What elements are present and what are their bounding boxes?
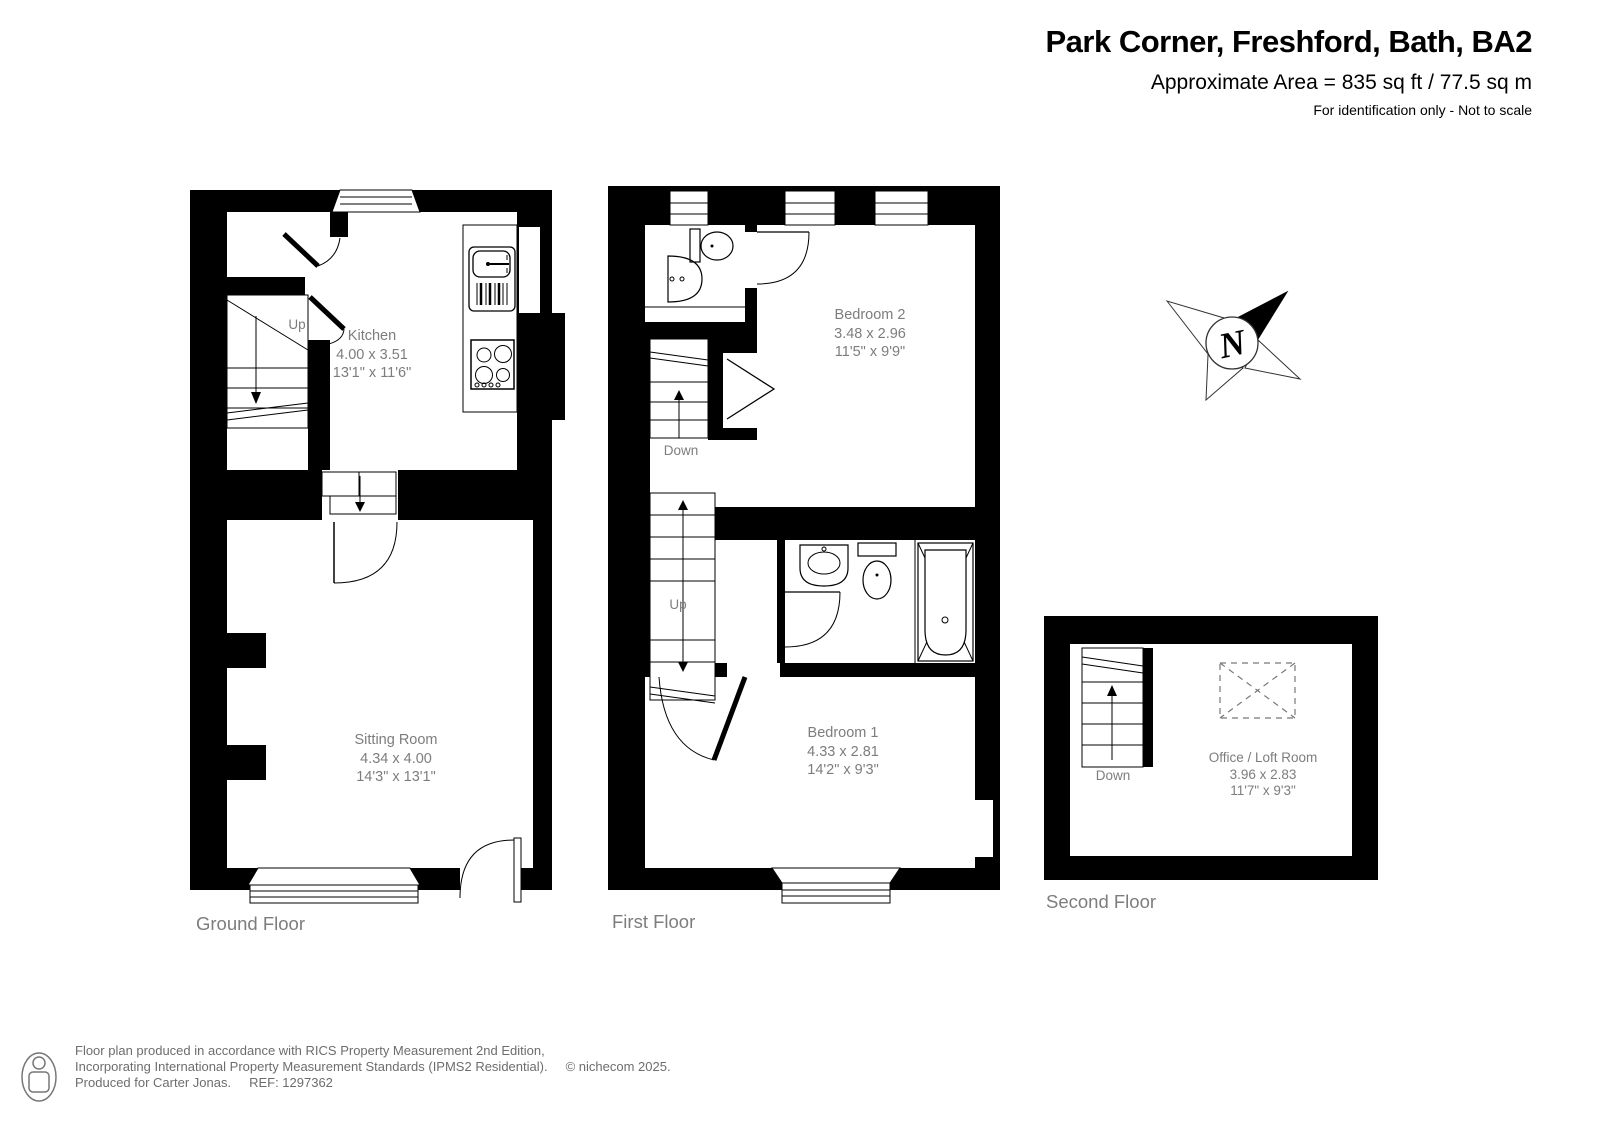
room-name: Kitchen: [333, 327, 411, 346]
room-size-imperial: 11'5" x 9'9": [834, 343, 906, 362]
person-icon: [22, 1053, 56, 1101]
room-size-imperial: 13'1" x 11'6": [333, 364, 411, 383]
interior-wall: [715, 507, 975, 540]
sitting-room-floor: [227, 520, 533, 868]
interior-wall: [330, 212, 348, 237]
ground-floor-plan: [190, 190, 565, 903]
window: [785, 191, 835, 225]
room-size-metric: 3.48 x 2.96: [834, 325, 906, 344]
interior-wall: [715, 339, 757, 353]
office-label: Office / Loft Room 3.96 x 2.83 11'7" x 9…: [1209, 750, 1318, 800]
first-floor-plan: [608, 186, 1000, 903]
interior-wall: [1143, 648, 1153, 767]
bay-window: [248, 868, 420, 903]
room-name: Bedroom 1: [807, 724, 879, 743]
interior-wall: [777, 645, 785, 663]
chimney-pillar: [227, 745, 266, 780]
stair-label-down-first: Down: [664, 443, 699, 458]
reference-number: REF: 1297362: [249, 1075, 333, 1090]
interior-wall: [715, 428, 757, 440]
header: Park Corner, Freshford, Bath, BA2 Approx…: [1045, 24, 1532, 118]
kitchen-window: [332, 190, 420, 212]
room-size-metric: 4.33 x 2.81: [807, 743, 879, 762]
room-size-imperial: 14'3" x 13'1": [354, 768, 437, 787]
hallway: [715, 540, 777, 665]
footer-line1: Floor plan produced in accordance with R…: [75, 1043, 671, 1059]
disclaimer: For identification only - Not to scale: [1045, 102, 1532, 118]
kitchen-label: Kitchen 4.00 x 3.51 13'1" x 11'6": [333, 327, 411, 383]
room-size-imperial: 14'2" x 9'3": [807, 761, 879, 780]
stair-label-up-first: Up: [669, 597, 686, 612]
wall-recess: [519, 227, 540, 313]
interior-wall: [780, 663, 975, 677]
produced-for-text: Produced for Carter Jonas.: [75, 1075, 231, 1090]
footer-line2: Incorporating International Property Mea…: [75, 1059, 671, 1075]
chimney-pillar: [227, 633, 266, 668]
room-name: Office / Loft Room: [1209, 750, 1318, 767]
page-title: Park Corner, Freshford, Bath, BA2: [1045, 24, 1532, 60]
bedroom1-label: Bedroom 1 4.33 x 2.81 14'2" x 9'3": [807, 724, 879, 780]
sitting-room-label: Sitting Room 4.34 x 4.00 14'3" x 13'1": [354, 731, 437, 787]
wall-recess: [975, 800, 993, 857]
stair-label-down-second: Down: [1096, 768, 1131, 783]
room-size-metric: 3.96 x 2.83: [1209, 767, 1318, 784]
bedroom2-floor: [757, 225, 975, 507]
footer-line3: Produced for Carter Jonas.REF: 1297362: [75, 1075, 671, 1091]
footer-standards-text: Incorporating International Property Mea…: [75, 1059, 548, 1074]
interior-wall: [308, 340, 330, 470]
stair-label-up-ground: Up: [288, 317, 305, 332]
window: [670, 191, 708, 225]
room-name: Sitting Room: [354, 731, 437, 750]
interior-wall: [227, 277, 305, 295]
window: [875, 191, 928, 225]
footer: Floor plan produced in accordance with R…: [75, 1043, 671, 1090]
doorway-gap: [723, 353, 757, 428]
first-floor-label: First Floor: [612, 911, 695, 933]
room-size-imperial: 11'7" x 9'3": [1209, 783, 1318, 800]
interior-wall: [715, 663, 727, 677]
second-floor-label: Second Floor: [1046, 891, 1156, 913]
floorplan-canvas: N: [0, 0, 1600, 1132]
room-size-metric: 4.00 x 3.51: [333, 346, 411, 365]
room-name: Bedroom 2: [834, 306, 906, 325]
interior-wall: [708, 339, 715, 440]
approximate-area: Approximate Area = 835 sq ft / 77.5 sq m: [1045, 71, 1532, 95]
interior-wall: [777, 540, 785, 592]
interior-wall: [645, 322, 757, 339]
compass-rose: N: [1167, 292, 1300, 400]
doorway-gap: [745, 232, 757, 288]
bathtub-icon: [918, 543, 973, 661]
floorplan-page: N Park Corner, Freshford, Bath, BA2 Appr…: [0, 0, 1600, 1132]
bedroom2-label: Bedroom 2 3.48 x 2.96 11'5" x 9'9": [834, 306, 906, 362]
window: [772, 868, 900, 903]
second-floor-plan: [1044, 616, 1378, 880]
wall-bump: [552, 313, 565, 420]
doorway-gap: [727, 663, 780, 677]
room-size-metric: 4.34 x 4.00: [354, 750, 437, 769]
copyright-text: © nichecom 2025.: [566, 1059, 671, 1074]
ground-floor-label: Ground Floor: [196, 913, 305, 935]
